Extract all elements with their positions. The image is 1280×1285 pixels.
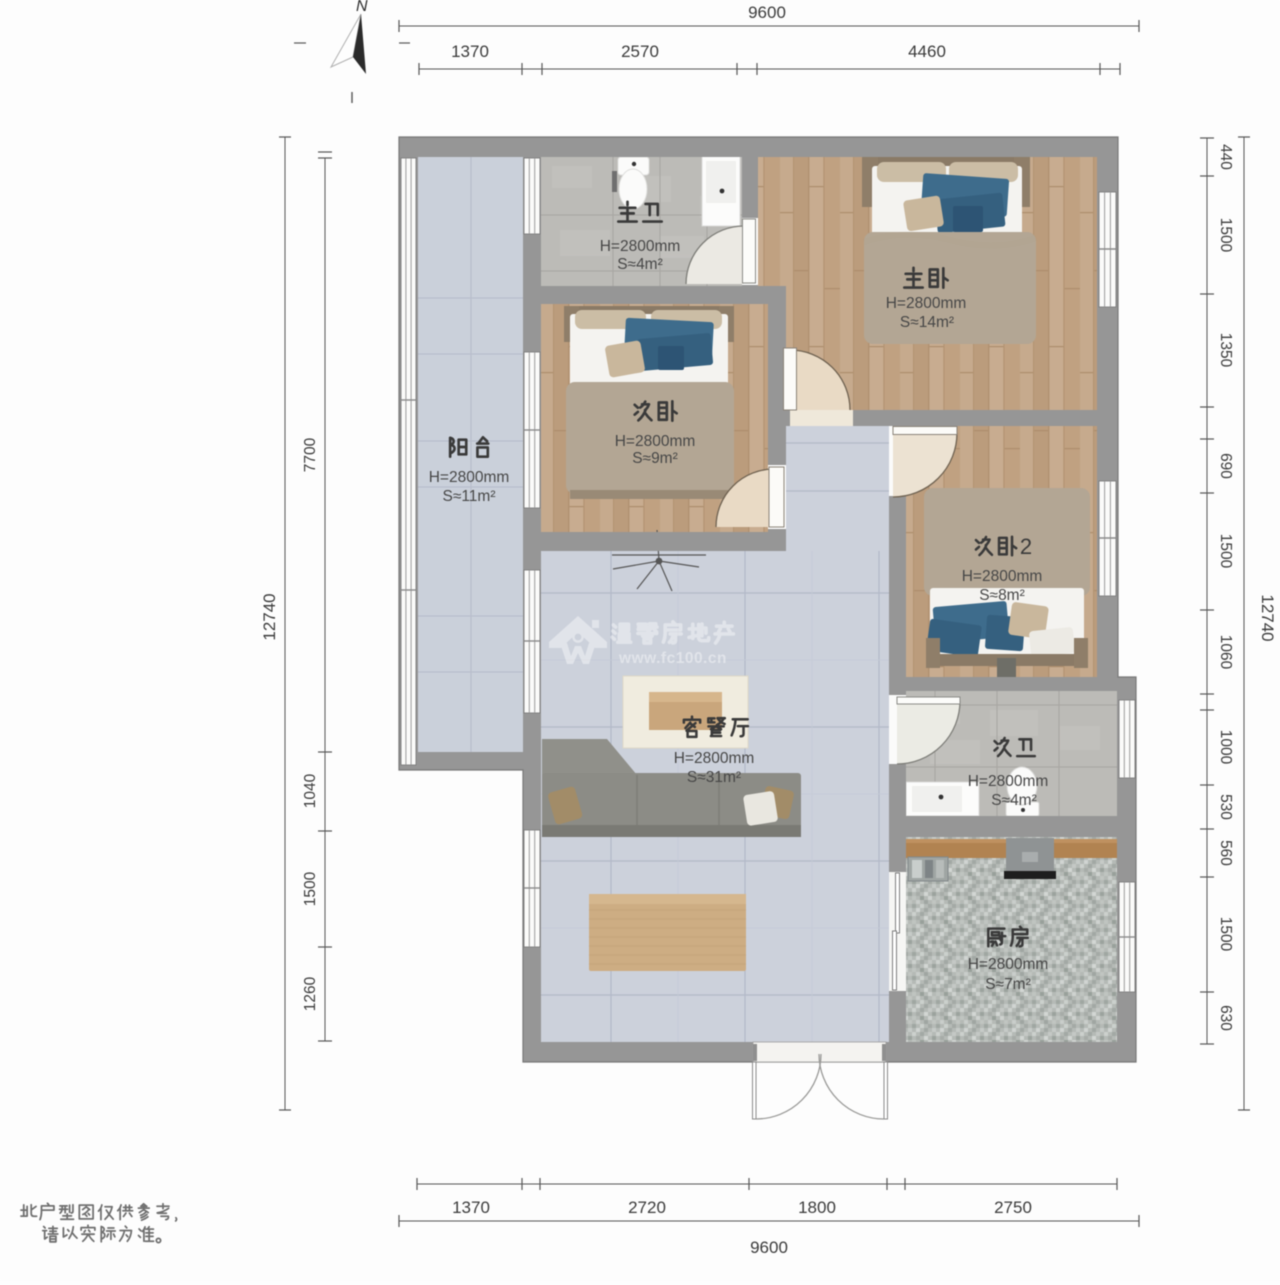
- svg-text:H=2800mm: H=2800mm: [962, 568, 1043, 585]
- svg-text:9600: 9600: [750, 1238, 788, 1257]
- svg-text:S≈7m²: S≈7m²: [985, 976, 1031, 993]
- svg-text:S≈8m²: S≈8m²: [979, 587, 1025, 604]
- svg-text:560: 560: [1217, 840, 1234, 866]
- svg-text:1370: 1370: [452, 1198, 490, 1217]
- svg-text:1260: 1260: [302, 976, 319, 1011]
- svg-text:440: 440: [1217, 144, 1234, 170]
- svg-text:H=2800mm: H=2800mm: [968, 956, 1049, 973]
- svg-text:12740: 12740: [1258, 594, 1277, 641]
- svg-text:1370: 1370: [451, 42, 489, 61]
- svg-text:1350: 1350: [1217, 333, 1234, 368]
- svg-text:2750: 2750: [994, 1198, 1032, 1217]
- svg-text:1500: 1500: [1217, 917, 1234, 952]
- svg-text:H=2800mm: H=2800mm: [968, 773, 1049, 790]
- svg-text:4460: 4460: [908, 42, 946, 61]
- svg-text:S≈4m²: S≈4m²: [991, 792, 1037, 809]
- svg-text:2570: 2570: [621, 42, 659, 61]
- svg-text:2: 2: [1020, 534, 1032, 559]
- svg-text:2720: 2720: [628, 1198, 666, 1217]
- svg-text:1040: 1040: [302, 773, 319, 808]
- svg-text:S≈11m²: S≈11m²: [442, 488, 495, 505]
- svg-text:9600: 9600: [748, 3, 786, 22]
- svg-text:S≈9m²: S≈9m²: [632, 450, 678, 467]
- svg-text:H=2800mm: H=2800mm: [886, 295, 967, 312]
- svg-text:S≈4m²: S≈4m²: [617, 256, 663, 273]
- svg-text:H=2800mm: H=2800mm: [429, 469, 510, 486]
- svg-text:7700: 7700: [302, 437, 319, 472]
- svg-text:1500: 1500: [1217, 218, 1234, 253]
- svg-text:690: 690: [1217, 453, 1234, 479]
- svg-text:1060: 1060: [1217, 635, 1234, 670]
- svg-text:12740: 12740: [260, 593, 279, 640]
- svg-text:S≈14m²: S≈14m²: [900, 314, 954, 331]
- svg-text:530: 530: [1217, 794, 1234, 820]
- svg-text:H=2800mm: H=2800mm: [600, 238, 681, 255]
- svg-text:S≈31m²: S≈31m²: [687, 769, 741, 786]
- svg-text:H=2800mm: H=2800mm: [674, 750, 755, 767]
- svg-text:1800: 1800: [798, 1198, 836, 1217]
- svg-text:1000: 1000: [1217, 730, 1234, 765]
- svg-text:1500: 1500: [1217, 534, 1234, 569]
- svg-text:630: 630: [1217, 1005, 1234, 1031]
- svg-text:N: N: [356, 0, 368, 15]
- svg-text:H=2800mm: H=2800mm: [615, 433, 696, 450]
- svg-text:1500: 1500: [302, 871, 319, 906]
- svg-text:www.fc100.cn: www.fc100.cn: [618, 650, 727, 667]
